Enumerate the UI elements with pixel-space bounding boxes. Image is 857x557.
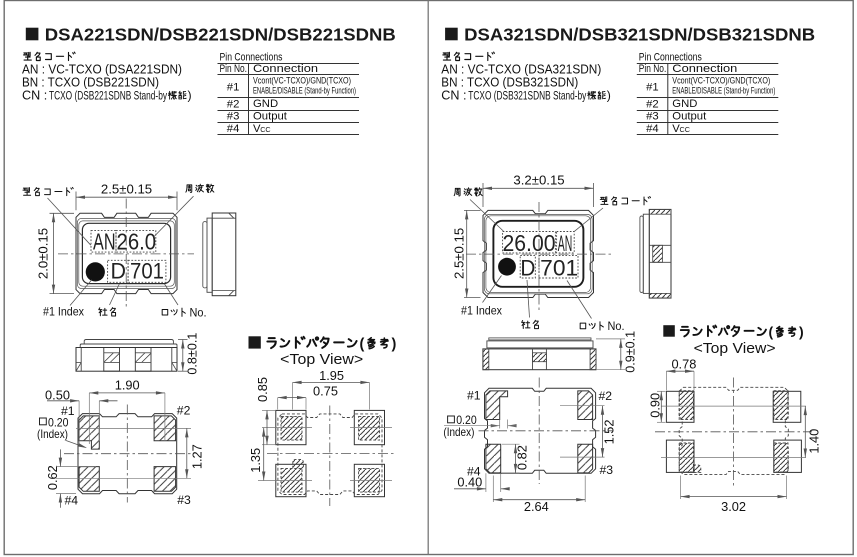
svg-text:GND: GND [672,98,697,110]
svg-text:26.0: 26.0 [117,229,157,255]
svg-text:D: D [520,256,535,281]
svg-text:#4: #4 [227,123,240,135]
svg-text:AN: AN [558,231,573,256]
svg-text:): ) [799,324,804,340]
svg-text:#4: #4 [467,465,481,479]
svg-text:2.5±0.15: 2.5±0.15 [101,182,152,197]
svg-text:1.52: 1.52 [601,419,616,444]
svg-text:TCXO (DSB221SDNB Stand-by: TCXO (DSB221SDNB Stand-by [49,88,168,102]
svg-text:1.40: 1.40 [806,429,821,454]
svg-text:DSA321SDN/DSB321SDN/DSB321SDNB: DSA321SDN/DSB321SDN/DSB321SDNB [464,25,815,45]
svg-text:#1: #1 [646,81,659,93]
svg-text:#1 Index: #1 Index [461,303,502,317]
svg-text:Output: Output [672,111,707,123]
svg-text:0.82: 0.82 [515,445,530,470]
svg-text:DSA221SDN/DSB221SDN/DSB221SDNB: DSA221SDN/DSB221SDN/DSB221SDNB [45,25,396,45]
svg-text:#1 Index: #1 Index [43,305,84,319]
svg-text:0.9±0.1: 0.9±0.1 [624,331,638,373]
svg-text:AN: AN [93,229,116,255]
svg-text:CC: CC [260,125,270,134]
svg-text:#3: #3 [600,463,614,477]
svg-text:0.50: 0.50 [45,388,70,403]
svg-text:0.85: 0.85 [255,377,270,402]
svg-text:ENABLE/DISABLE (Stand-by Func: ENABLE/DISABLE (Stand-by Function) [672,86,775,96]
svg-text:1.90: 1.90 [115,378,140,393]
svg-text:<Top View>: <Top View> [694,341,776,357]
svg-text:2.64: 2.64 [524,499,549,514]
svg-text:#4: #4 [646,123,659,135]
svg-text:2.0±0.15: 2.0±0.15 [35,228,50,279]
svg-text:#2: #2 [646,99,659,111]
svg-text:#1: #1 [227,81,240,93]
svg-text:D: D [111,259,127,284]
svg-text:(: ( [769,324,774,340]
svg-text:<Top View>: <Top View> [280,352,363,368]
svg-text:3.02: 3.02 [721,499,746,514]
svg-text:701: 701 [540,256,578,281]
svg-text:Pin Connections: Pin Connections [639,52,702,64]
svg-text:Output: Output [253,111,288,123]
svg-text:#3: #3 [177,493,191,507]
svg-text:#2: #2 [599,389,613,403]
svg-text:1.35: 1.35 [248,448,263,473]
svg-text:0.75: 0.75 [313,383,338,398]
svg-text:CN :: CN : [441,88,466,102]
svg-text:0.78: 0.78 [671,357,696,372]
svg-text:3.2±0.15: 3.2±0.15 [513,173,564,188]
svg-text:TCXO (DSB321SDNB Stand-by: TCXO (DSB321SDNB Stand-by [468,88,587,102]
svg-text:ENABLE/DISABLE (Stand-by Func: ENABLE/DISABLE (Stand-by Function) [253,86,356,96]
svg-text:): ) [392,336,397,352]
svg-text:Pin No.: Pin No. [639,63,667,75]
svg-text:#2: #2 [227,99,240,111]
svg-text:BN : TCXO (DSB321SDN): BN : TCXO (DSB321SDN) [441,75,578,89]
svg-text:0.8±0.1: 0.8±0.1 [185,333,199,375]
svg-text:#1: #1 [467,388,481,402]
svg-text:BN : TCXO (DSB221SDN): BN : TCXO (DSB221SDN) [22,75,159,89]
svg-text:Pin Connections: Pin Connections [220,52,283,64]
svg-text:AN : VC-TCXO (DSA321SDN): AN : VC-TCXO (DSA321SDN) [441,62,601,76]
svg-text:(Index): (Index) [37,428,68,441]
svg-text:CC: CC [680,125,690,134]
svg-text:#3: #3 [227,111,240,123]
svg-text:(Index): (Index) [443,426,474,439]
svg-text:Connection: Connection [253,63,318,75]
svg-text:GND: GND [253,98,278,110]
svg-text:#3: #3 [646,111,659,123]
svg-text:Vcont(VC-TCXO)/GND(TCXO): Vcont(VC-TCXO)/GND(TCXO) [672,76,770,86]
svg-text:26.00: 26.00 [503,230,556,256]
svg-text:Connection: Connection [672,63,737,75]
svg-text:1.27: 1.27 [189,444,204,469]
svg-text:2.5±0.15: 2.5±0.15 [451,228,466,279]
svg-text:): ) [607,88,611,102]
svg-text:No.: No. [608,319,625,333]
svg-text:#2: #2 [177,404,191,418]
svg-text:1.95: 1.95 [319,368,344,383]
svg-text:AN : VC-TCXO (DSA221SDN): AN : VC-TCXO (DSA221SDN) [22,62,182,76]
svg-text:): ) [188,88,192,102]
svg-text:No.: No. [190,305,207,319]
svg-text:Pin No.: Pin No. [220,63,248,75]
svg-text:CN :: CN : [22,88,47,102]
svg-text:(: ( [360,336,365,352]
svg-text:#4: #4 [65,493,79,507]
svg-text:Vcont(VC-TCXO)/GND(TCXO): Vcont(VC-TCXO)/GND(TCXO) [253,76,351,86]
svg-text:701: 701 [130,259,164,284]
svg-text:0.62: 0.62 [45,465,60,490]
